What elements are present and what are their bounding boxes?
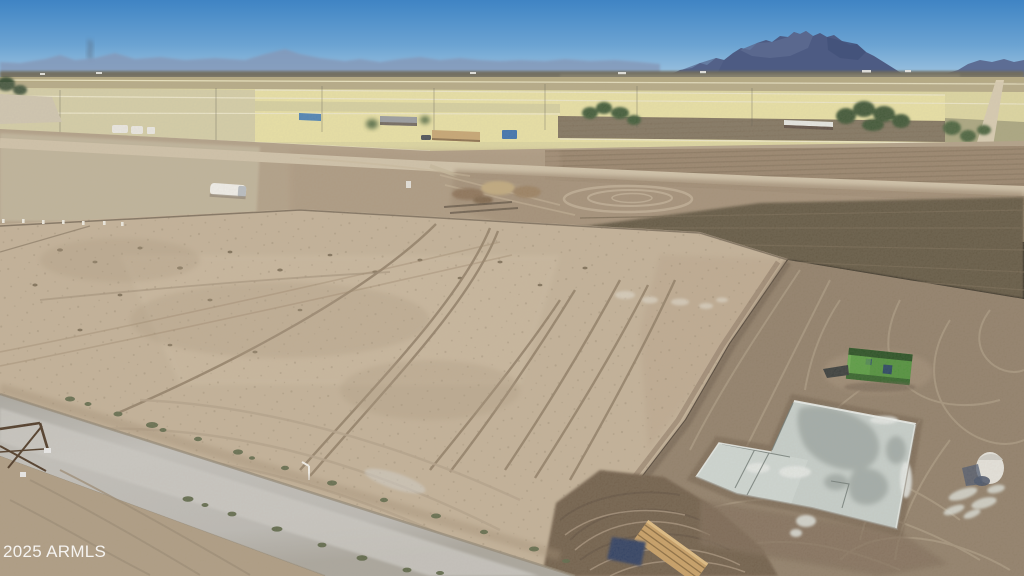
svg-text:2025 ARMLS: 2025 ARMLS (3, 542, 106, 561)
